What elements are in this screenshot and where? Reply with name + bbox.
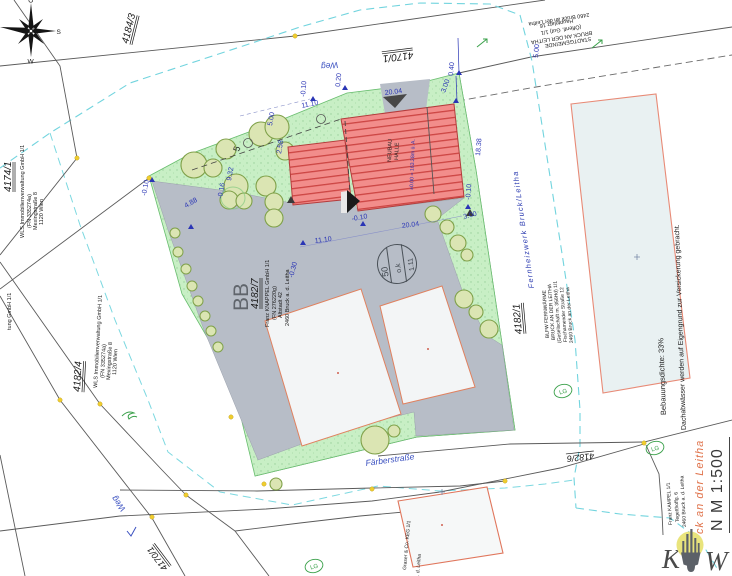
svg-text:50: 50 [379,266,390,277]
svg-text:HALLE: HALLE [394,142,401,160]
svg-text:o.k: o.k [395,262,403,273]
svg-text:4174/1: 4174/1 [3,161,14,192]
svg-text:Altstadt 42: Altstadt 42 [278,292,284,318]
svg-text:4182/7: 4182/7 [250,278,261,309]
svg-text:0.40: 0.40 [448,62,456,76]
svg-text:Franz KNAPPEL GmbH 1/1: Franz KNAPPEL GmbH 1/1 [265,260,271,327]
svg-text:5.00: 5.00 [533,44,541,58]
svg-text:NEUBAU: NEUBAU [387,139,394,162]
svg-text:2460 Bruck a. d. Leitha: 2460 Bruck a. d. Leitha [285,268,291,326]
svg-text:S: S [57,29,62,36]
svg-text:W: W [28,59,35,66]
svg-text:W: W [705,546,730,576]
svg-text:O: O [28,0,33,5]
svg-text:0.20: 0.20 [335,73,343,87]
svg-text:-0.10: -0.10 [300,81,308,98]
svg-text:tung GmbH 1/1: tung GmbH 1/1 [7,293,13,330]
svg-text:ck an der Leitha: ck an der Leitha [694,440,706,534]
svg-text:Weg: Weg [320,60,339,72]
svg-text:1120 Wien: 1120 Wien [39,199,45,225]
svg-text:-0.10: -0.10 [465,184,473,201]
svg-text:WLS Immobilienverwaltung GmbH: WLS Immobilienverwaltung GmbH 1/1 [20,145,26,238]
svg-text:N M 1:500: N M 1:500 [709,448,726,531]
